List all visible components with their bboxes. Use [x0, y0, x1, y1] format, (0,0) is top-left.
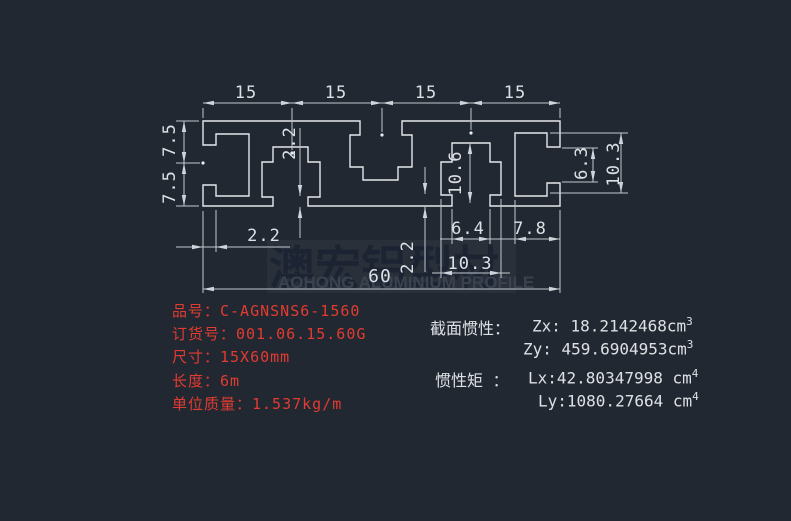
center-dots — [201, 131, 472, 164]
dim-lip-depth: 2.2 — [247, 226, 281, 246]
moment-label: 惯性矩 ： — [435, 367, 509, 391]
dim-left-2: 7.5 — [160, 170, 180, 204]
dim-end-width: 7.8 — [513, 219, 547, 239]
dim-wall-1: 2.2 — [280, 126, 300, 160]
dim-left-1: 7.5 — [160, 123, 180, 157]
dim-cavity-width: 10.3 — [448, 254, 493, 274]
unit-weight-line: 单位质量：1.537kg/m — [172, 393, 366, 416]
section-inertia-label: 截面惯性： — [430, 315, 510, 339]
length-line: 长度：6m — [172, 370, 366, 393]
size-line: 尺寸：15X60mm — [172, 346, 366, 369]
cad-canvas[interactable]: 澳宏铝型材 AOHONG ALUMINIUM PROFILE — [0, 0, 791, 521]
dim-slot-height: 10.6 — [446, 151, 466, 196]
product-info: 品号：C-AGNSNS6-1560 订货号：001.06.15.60G 尺寸：1… — [172, 300, 366, 416]
dimension-texts: 15 15 15 15 7.5 7.5 2.2 2.2 2.2 10.6 6.4… — [160, 83, 624, 287]
ly-value: Ly:1080.27664 cm4 — [538, 390, 699, 410]
dim-overall-width: 60 — [368, 266, 392, 287]
dim-right-cavity: 10.3 — [604, 142, 624, 187]
dim-top-3: 15 — [415, 83, 437, 103]
dim-right-mouth: 6.3 — [572, 146, 592, 180]
profile-drawing: 15 15 15 15 7.5 7.5 2.2 2.2 2.2 10.6 6.4… — [0, 0, 791, 521]
dim-top-2: 15 — [325, 83, 347, 103]
ly-exponent: 4 — [692, 390, 699, 403]
dim-top-4: 15 — [504, 83, 526, 103]
product-code-line: 品号：C-AGNSNS6-1560 — [172, 300, 366, 323]
order-number-line: 订货号：001.06.15.60G — [172, 323, 366, 346]
zx-value: Zx: 18.2142468cm3 — [532, 315, 693, 335]
dim-top-1: 15 — [235, 83, 257, 103]
zy-value: Zy: 459.6904953cm3 — [523, 338, 693, 358]
zy-exponent: 3 — [687, 338, 694, 351]
lx-exponent: 4 — [692, 367, 699, 380]
lx-value: Lx:42.80347998 cm4 — [528, 367, 698, 387]
zx-exponent: 3 — [686, 315, 693, 328]
dim-mouth-width: 6.4 — [451, 219, 485, 239]
dim-wall-2: 2.2 — [398, 240, 418, 274]
